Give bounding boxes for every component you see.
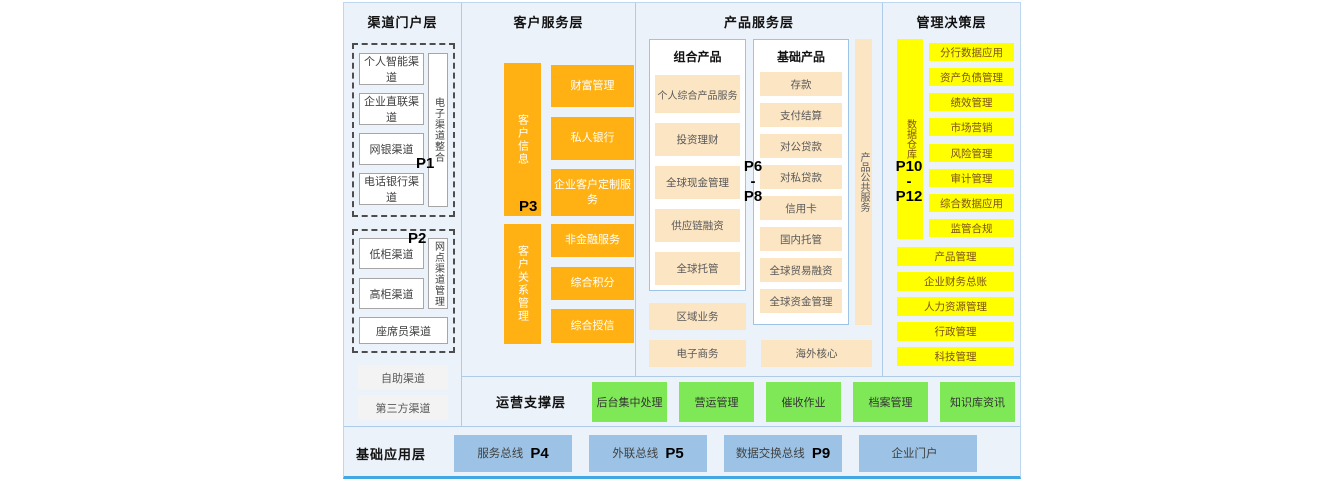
p10-label: P10	[885, 159, 933, 174]
box-collection-operations: 催收作业	[766, 382, 841, 422]
box-global-trade-financing: 全球贸易融资	[760, 258, 842, 282]
p10-p12-label: P10 - P12	[885, 159, 933, 204]
operation-support-layer: 运营支撑层 后台集中处理 营运管理 催收作业 档案管理 知识库资讯	[462, 376, 1020, 426]
box-global-cash-management: 全球现金管理	[655, 166, 740, 199]
box-global-fund-management: 全球资金管理	[760, 289, 842, 313]
box-external-bus: 外联总线 P5	[589, 435, 707, 472]
base-layer-title: 基础应用层	[356, 444, 454, 463]
bar-customer-relationship-management: 客户关系管理	[504, 224, 541, 344]
base-boxes: 服务总线 P4 外联总线 P5 数据交换总线 P9 企业门户	[454, 435, 977, 472]
box-agent-channel: 座席员渠道	[359, 317, 448, 344]
p5-label: P5	[665, 445, 683, 462]
external-bus-label: 外联总线	[612, 445, 658, 461]
electronic-channel-group: 个人智能渠道 企业直联渠道 网银渠道 电话银行渠道 电子渠道整合	[352, 43, 455, 217]
box-online-banking-channel: 网银渠道	[359, 133, 424, 165]
enterprise-portal-label: 企业门户	[892, 445, 938, 461]
box-enterprise-custom-service: 企业客户定制服务	[551, 169, 634, 216]
box-investment-wealth: 投资理财	[655, 123, 740, 156]
bar-product-public-service: 产品公共服务	[855, 39, 872, 325]
box-audit-management: 审计管理	[929, 169, 1014, 187]
box-comprehensive-credit: 综合授信	[551, 309, 634, 343]
box-branch-data-application: 分行数据应用	[929, 43, 1014, 61]
electronic-channel-stack: 个人智能渠道 企业直联渠道 网银渠道 电话银行渠道	[359, 53, 424, 207]
box-administrative-management: 行政管理	[897, 322, 1014, 341]
bar-electronic-channel-integration: 电子渠道整合	[428, 53, 448, 207]
box-personal-comprehensive-product-service: 个人综合产品服务	[655, 75, 740, 113]
p6-label: P6	[733, 159, 773, 174]
customer-service-layer: 客户服务层 客户信息 财富管理 私人银行 企业客户定制服务 P3 客户关系管理 …	[462, 3, 636, 376]
box-third-party-channel: 第三方渠道	[358, 395, 448, 420]
bar-customer-information: 客户信息	[504, 63, 541, 216]
customer-layer-title: 客户服务层	[462, 3, 635, 31]
box-personal-smart-channel: 个人智能渠道	[359, 53, 424, 85]
channel-portal-layer: 渠道门户层 个人智能渠道 企业直联渠道 网银渠道 电话银行渠道 电子渠道整合 P…	[344, 3, 462, 426]
architecture-diagram: 渠道门户层 个人智能渠道 企业直联渠道 网银渠道 电话银行渠道 电子渠道整合 P…	[343, 2, 1021, 479]
box-high-counter-channel: 高柜渠道	[359, 278, 424, 309]
top-area: 渠道门户层 个人智能渠道 企业直联渠道 网银渠道 电话银行渠道 电子渠道整合 P…	[344, 3, 1020, 426]
p1-label: P1	[416, 155, 434, 172]
box-regulatory-compliance: 监管合规	[929, 219, 1014, 237]
box-payment-settlement: 支付结算	[760, 103, 842, 127]
combo-products-title: 组合产品	[650, 48, 745, 65]
bar-data-warehouse: 数据仓库	[897, 39, 923, 239]
box-enterprise-portal: 企业门户	[859, 435, 977, 472]
box-corporate-loans: 对公贷款	[760, 134, 842, 158]
product-service-layer: 产品服务层 组合产品 个人综合产品服务 投资理财 全球现金管理 供应链融资 全球…	[636, 3, 883, 376]
box-product-management: 产品管理	[897, 247, 1014, 266]
upper-columns: 客户服务层 客户信息 财富管理 私人银行 企业客户定制服务 P3 客户关系管理 …	[462, 3, 1020, 376]
ops-boxes: 后台集中处理 营运管理 催收作业 档案管理 知识库资讯	[592, 382, 1015, 422]
p12-label: P12	[885, 189, 933, 204]
p8-label: P8	[733, 189, 773, 204]
box-knowledge-base-information: 知识库资讯	[940, 382, 1015, 422]
p10-p12-dash: -	[885, 174, 933, 189]
box-comprehensive-data-application: 综合数据应用	[929, 194, 1014, 212]
box-private-banking: 私人银行	[551, 117, 634, 160]
branch-channel-group: 低柜渠道 高柜渠道 网点渠道管理 座席员渠道	[352, 229, 455, 353]
box-risk-management: 风险管理	[929, 144, 1014, 162]
p4-label: P4	[530, 445, 548, 462]
branch-channel-row: 低柜渠道 高柜渠道 网点渠道管理	[359, 238, 448, 309]
box-operations-management: 营运管理	[679, 382, 754, 422]
management-layer-title: 管理决策层	[883, 3, 1020, 31]
box-overseas-core: 海外核心	[761, 340, 872, 367]
product-layer-title: 产品服务层	[636, 3, 882, 31]
box-telephone-banking-channel: 电话银行渠道	[359, 173, 424, 205]
data-exchange-bus-label: 数据交换总线	[736, 445, 805, 461]
box-human-resources-management: 人力资源管理	[897, 297, 1014, 316]
ops-layer-title: 运营支撑层	[496, 392, 592, 411]
p6-p8-label: P6 - P8	[733, 159, 773, 204]
right-area: 客户服务层 客户信息 财富管理 私人银行 企业客户定制服务 P3 客户关系管理 …	[462, 3, 1020, 426]
branch-channel-stack: 低柜渠道 高柜渠道	[359, 238, 424, 309]
box-archive-management: 档案管理	[853, 382, 928, 422]
combo-products-group: 组合产品 个人综合产品服务 投资理财 全球现金管理 供应链融资 全球托管	[649, 39, 746, 291]
box-regional-business: 区域业务	[649, 303, 746, 330]
management-decision-layer: 管理决策层 数据仓库 分行数据应用 资产负债管理 绩效管理 市场营销 风险管理 …	[883, 3, 1020, 376]
box-supply-chain-financing: 供应链融资	[655, 209, 740, 242]
box-data-exchange-bus: 数据交换总线 P9	[724, 435, 842, 472]
box-non-financial-service: 非金融服务	[551, 224, 634, 257]
channel-layer-title: 渠道门户层	[344, 3, 461, 31]
box-performance-management: 绩效管理	[929, 93, 1014, 111]
p6-p8-dash: -	[733, 174, 773, 189]
basic-products-title: 基础产品	[754, 48, 848, 65]
box-e-commerce: 电子商务	[649, 340, 746, 367]
basic-application-layer: 基础应用层 服务总线 P4 外联总线 P5 数据交换总线 P9 企业门户	[344, 426, 1020, 479]
box-marketing: 市场营销	[929, 118, 1014, 136]
box-enterprise-direct-channel: 企业直联渠道	[359, 93, 424, 125]
box-backoffice-centralized-processing: 后台集中处理	[592, 382, 667, 422]
service-bus-label: 服务总线	[477, 445, 523, 461]
box-deposits: 存款	[760, 72, 842, 96]
box-enterprise-financial-ledger: 企业财务总账	[897, 272, 1014, 291]
p2-label: P2	[408, 230, 426, 247]
bar-branch-channel-management: 网点渠道管理	[428, 238, 448, 309]
box-comprehensive-points: 综合积分	[551, 267, 634, 300]
box-domestic-custody: 国内托管	[760, 227, 842, 251]
box-wealth-management: 财富管理	[551, 65, 634, 107]
p3-label: P3	[519, 198, 537, 215]
box-service-bus: 服务总线 P4	[454, 435, 572, 472]
box-self-service-channel: 自助渠道	[358, 365, 448, 390]
box-global-custody: 全球托管	[655, 252, 740, 285]
p9-label: P9	[812, 445, 830, 462]
box-asset-liability-management: 资产负债管理	[929, 68, 1014, 86]
box-technology-management: 科技管理	[897, 347, 1014, 366]
